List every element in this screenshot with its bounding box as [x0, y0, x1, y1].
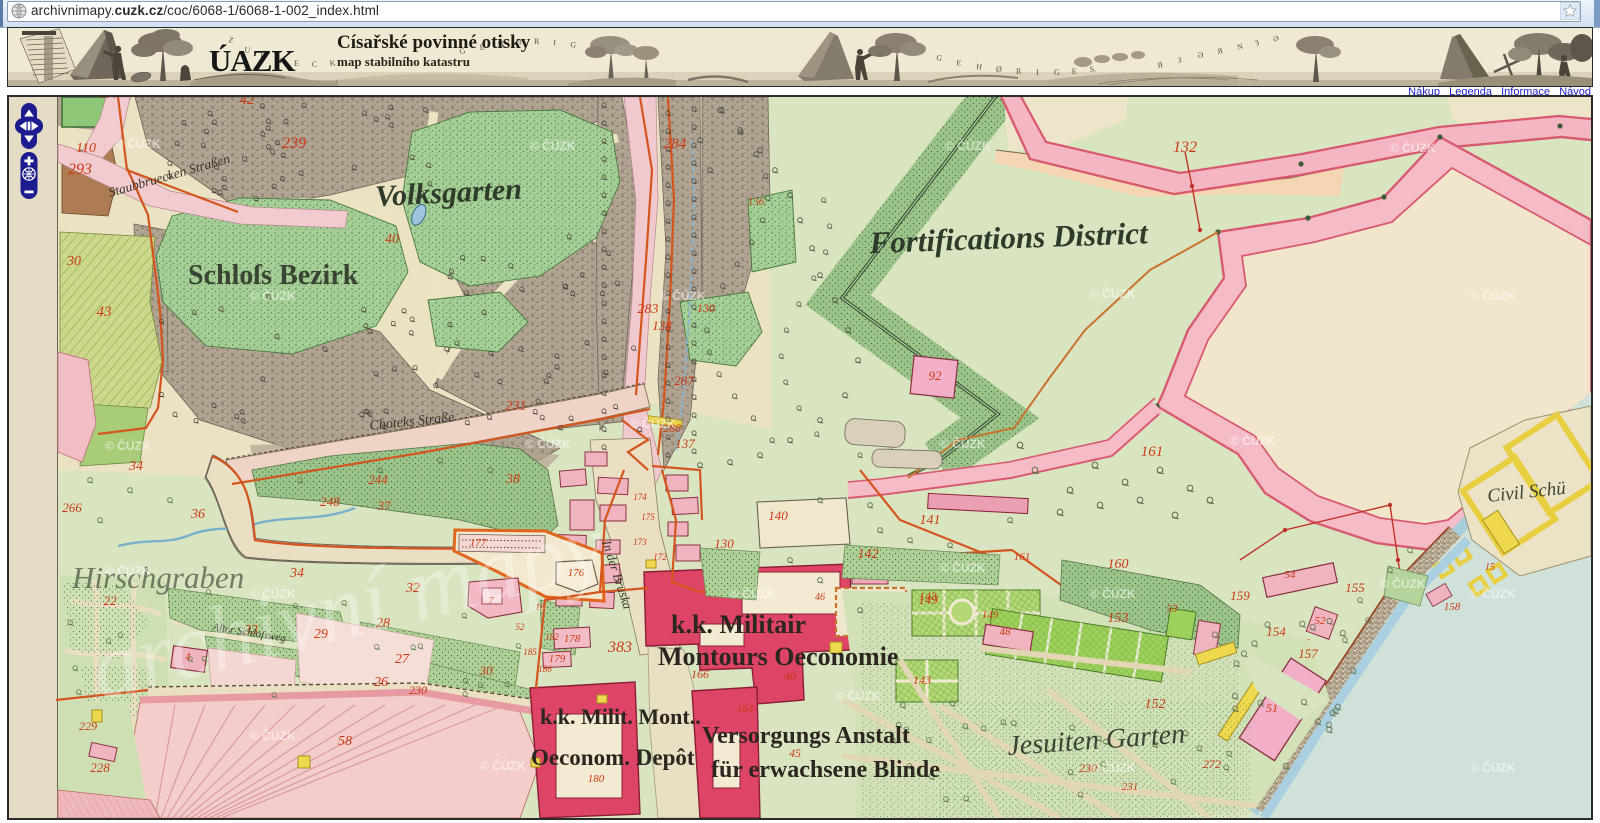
- svg-text:138: 138: [652, 318, 672, 333]
- svg-text:239: 239: [282, 135, 306, 152]
- svg-text:© ČÚZK: © ČÚZK: [945, 138, 991, 153]
- svg-text:58: 58: [338, 734, 352, 749]
- svg-text:42: 42: [240, 92, 256, 108]
- svg-text:27: 27: [395, 652, 410, 667]
- svg-text:383: 383: [607, 639, 632, 656]
- svg-text:153: 153: [1108, 611, 1129, 626]
- svg-text:266: 266: [62, 500, 82, 515]
- svg-text:287: 287: [674, 373, 694, 388]
- svg-text:© ČÚZK: © ČÚZK: [480, 758, 526, 773]
- svg-text:k.k. Militair: k.k. Militair: [671, 610, 806, 639]
- svg-text:53: 53: [1167, 603, 1179, 615]
- svg-text:161: 161: [1141, 444, 1164, 460]
- svg-text:© ČÚZK: © ČÚZK: [1090, 586, 1136, 601]
- svg-text:142: 142: [858, 547, 879, 562]
- svg-text:40: 40: [385, 232, 399, 247]
- svg-text:Schloſs Bezirk: Schloſs Bezirk: [188, 260, 359, 291]
- svg-text:180: 180: [588, 773, 605, 785]
- svg-text:175: 175: [641, 512, 655, 522]
- svg-text:© ČÚZK: © ČÚZK: [105, 563, 151, 578]
- svg-text:51: 51: [1266, 701, 1278, 715]
- svg-text:30: 30: [479, 663, 494, 678]
- svg-text:160: 160: [1108, 557, 1129, 572]
- svg-text:52: 52: [516, 622, 526, 632]
- svg-text:36: 36: [190, 507, 205, 522]
- svg-text:159: 159: [1230, 588, 1250, 603]
- svg-text:15: 15: [1485, 562, 1495, 573]
- svg-text:143: 143: [913, 673, 931, 687]
- svg-text:26: 26: [374, 675, 388, 690]
- svg-text:130: 130: [697, 301, 715, 315]
- svg-text:155: 155: [1345, 580, 1365, 595]
- svg-text:© ČÚZK: © ČÚZK: [940, 436, 986, 451]
- svg-text:231: 231: [1122, 781, 1139, 793]
- svg-text:132: 132: [1173, 139, 1197, 156]
- svg-text:52: 52: [1315, 615, 1327, 627]
- svg-text:283: 283: [638, 302, 659, 317]
- svg-text:164: 164: [737, 703, 754, 715]
- svg-text:für erwachsene Blinde: für erwachsene Blinde: [711, 757, 940, 783]
- svg-text:30: 30: [66, 254, 81, 269]
- svg-text:22: 22: [104, 593, 118, 608]
- svg-text:© ČÚZK: © ČÚZK: [105, 438, 151, 453]
- svg-text:149: 149: [982, 609, 999, 621]
- svg-text:186: 186: [538, 664, 552, 674]
- svg-text:248: 248: [320, 494, 340, 509]
- svg-text:34: 34: [128, 459, 143, 474]
- svg-text:k.k. Milit. Mont..: k.k. Milit. Mont..: [540, 704, 701, 729]
- svg-text:38: 38: [505, 472, 520, 487]
- svg-text:173: 173: [633, 537, 647, 547]
- svg-text:© ČÚZK: © ČÚZK: [115, 136, 161, 151]
- svg-text:229: 229: [79, 719, 97, 733]
- svg-text:158: 158: [1444, 601, 1461, 613]
- svg-text:230: 230: [409, 683, 427, 697]
- svg-text:244: 244: [368, 472, 388, 487]
- svg-text:© ČÚZK: © ČÚZK: [730, 586, 776, 601]
- svg-text:© ČÚZK: © ČÚZK: [660, 288, 706, 303]
- svg-text:43: 43: [97, 304, 112, 320]
- svg-text:© ČÚZK: © ČÚZK: [1470, 586, 1516, 601]
- svg-text:137: 137: [675, 436, 695, 451]
- svg-text:37: 37: [377, 498, 392, 513]
- svg-text:© ČÚZK: © ČÚZK: [630, 416, 676, 431]
- svg-text:Montours Oeconomie: Montours Oeconomie: [658, 642, 898, 671]
- svg-text:Oeconom. Depôt: Oeconom. Depôt: [531, 745, 695, 770]
- svg-text:© ČÚZK: © ČÚZK: [525, 436, 571, 451]
- svg-text:174: 174: [633, 492, 647, 502]
- svg-text:114: 114: [99, 87, 116, 101]
- svg-text:141: 141: [920, 513, 941, 528]
- svg-text:130: 130: [714, 536, 734, 551]
- svg-text:143: 143: [919, 589, 937, 603]
- svg-text:48: 48: [1000, 626, 1012, 638]
- svg-text:© ČÚZK: © ČÚZK: [530, 138, 576, 153]
- svg-text:© ČÚZK: © ČÚZK: [1470, 288, 1516, 303]
- svg-text:© ČÚZK: © ČÚZK: [250, 728, 296, 743]
- svg-text:© ČÚZK: © ČÚZK: [1090, 760, 1136, 775]
- svg-text:© ČÚZK: © ČÚZK: [940, 560, 986, 575]
- svg-text:Versorgungs Anstalt: Versorgungs Anstalt: [702, 723, 910, 749]
- svg-text:182: 182: [545, 632, 559, 642]
- svg-text:© ČÚZK: © ČÚZK: [1380, 576, 1426, 591]
- svg-text:140: 140: [768, 508, 788, 523]
- svg-text:54: 54: [1285, 569, 1297, 581]
- svg-text:© ČÚZK: © ČÚZK: [250, 288, 296, 303]
- svg-text:40: 40: [784, 669, 796, 683]
- svg-text:© ČÚZK: © ČÚZK: [1390, 140, 1436, 155]
- svg-text:© ČÚZK: © ČÚZK: [1470, 760, 1516, 775]
- svg-text:178: 178: [564, 633, 581, 645]
- svg-text:161: 161: [1014, 551, 1031, 563]
- svg-text:228: 228: [90, 760, 110, 775]
- svg-text:172: 172: [653, 552, 667, 562]
- svg-text:92: 92: [929, 368, 943, 383]
- svg-text:© ČÚZK: © ČÚZK: [835, 688, 881, 703]
- svg-text:293: 293: [68, 161, 92, 178]
- svg-text:157: 157: [1298, 646, 1318, 661]
- svg-text:152: 152: [1145, 697, 1166, 712]
- svg-text:284: 284: [664, 136, 687, 152]
- svg-text:185: 185: [523, 647, 537, 657]
- svg-text:46: 46: [815, 592, 825, 603]
- svg-text:154: 154: [1266, 624, 1286, 639]
- svg-text:© ČÚZK: © ČÚZK: [1230, 433, 1276, 448]
- svg-text:272: 272: [1203, 757, 1221, 771]
- svg-text:231: 231: [506, 399, 527, 414]
- svg-text:110: 110: [76, 141, 96, 156]
- svg-text:© ČÚZK: © ČÚZK: [1090, 286, 1136, 301]
- svg-text:136: 136: [748, 196, 765, 208]
